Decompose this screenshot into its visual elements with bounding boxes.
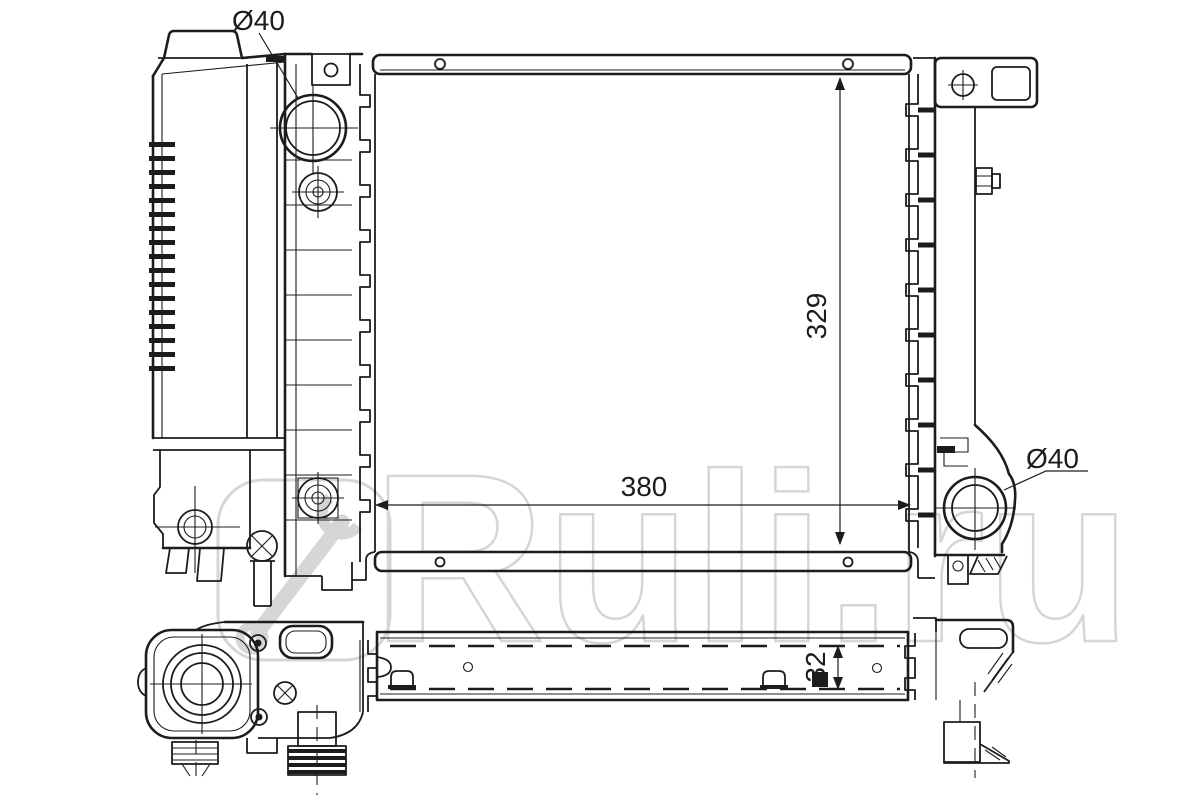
dim-core-width-label: 380 <box>621 471 668 502</box>
side-bolt <box>976 168 1000 194</box>
arrowhead-up <box>835 77 845 90</box>
leader-line <box>259 33 298 98</box>
end-cap-rings <box>150 634 252 734</box>
tank-foot <box>197 548 224 581</box>
dim-core-depth-label: 32 <box>800 651 831 682</box>
bracket-hole <box>325 64 338 77</box>
upper-fitting <box>292 166 344 218</box>
top-bracket <box>312 54 350 85</box>
tank-foot <box>166 548 189 573</box>
dim-inlet-diameter-label: Ø40 <box>232 5 285 36</box>
drawing-canvas: Ruli.ru <box>0 0 1200 800</box>
hose-connector <box>288 705 346 795</box>
ribbed-stub <box>172 740 218 780</box>
dim-core-height-label: 329 <box>801 293 832 340</box>
end-casting <box>138 622 377 795</box>
left-mounting-plate <box>266 54 370 590</box>
cross-screw <box>274 682 296 704</box>
valve-fitting <box>247 531 277 606</box>
dim-outlet-diameter-label: Ø40 <box>1026 443 1079 474</box>
mount-slot <box>280 626 332 658</box>
top-header-bar <box>373 55 911 74</box>
radiator-technical-drawing: Ruli.ru <box>0 0 1200 800</box>
watermark-text: Ruli.ru <box>372 424 1132 692</box>
